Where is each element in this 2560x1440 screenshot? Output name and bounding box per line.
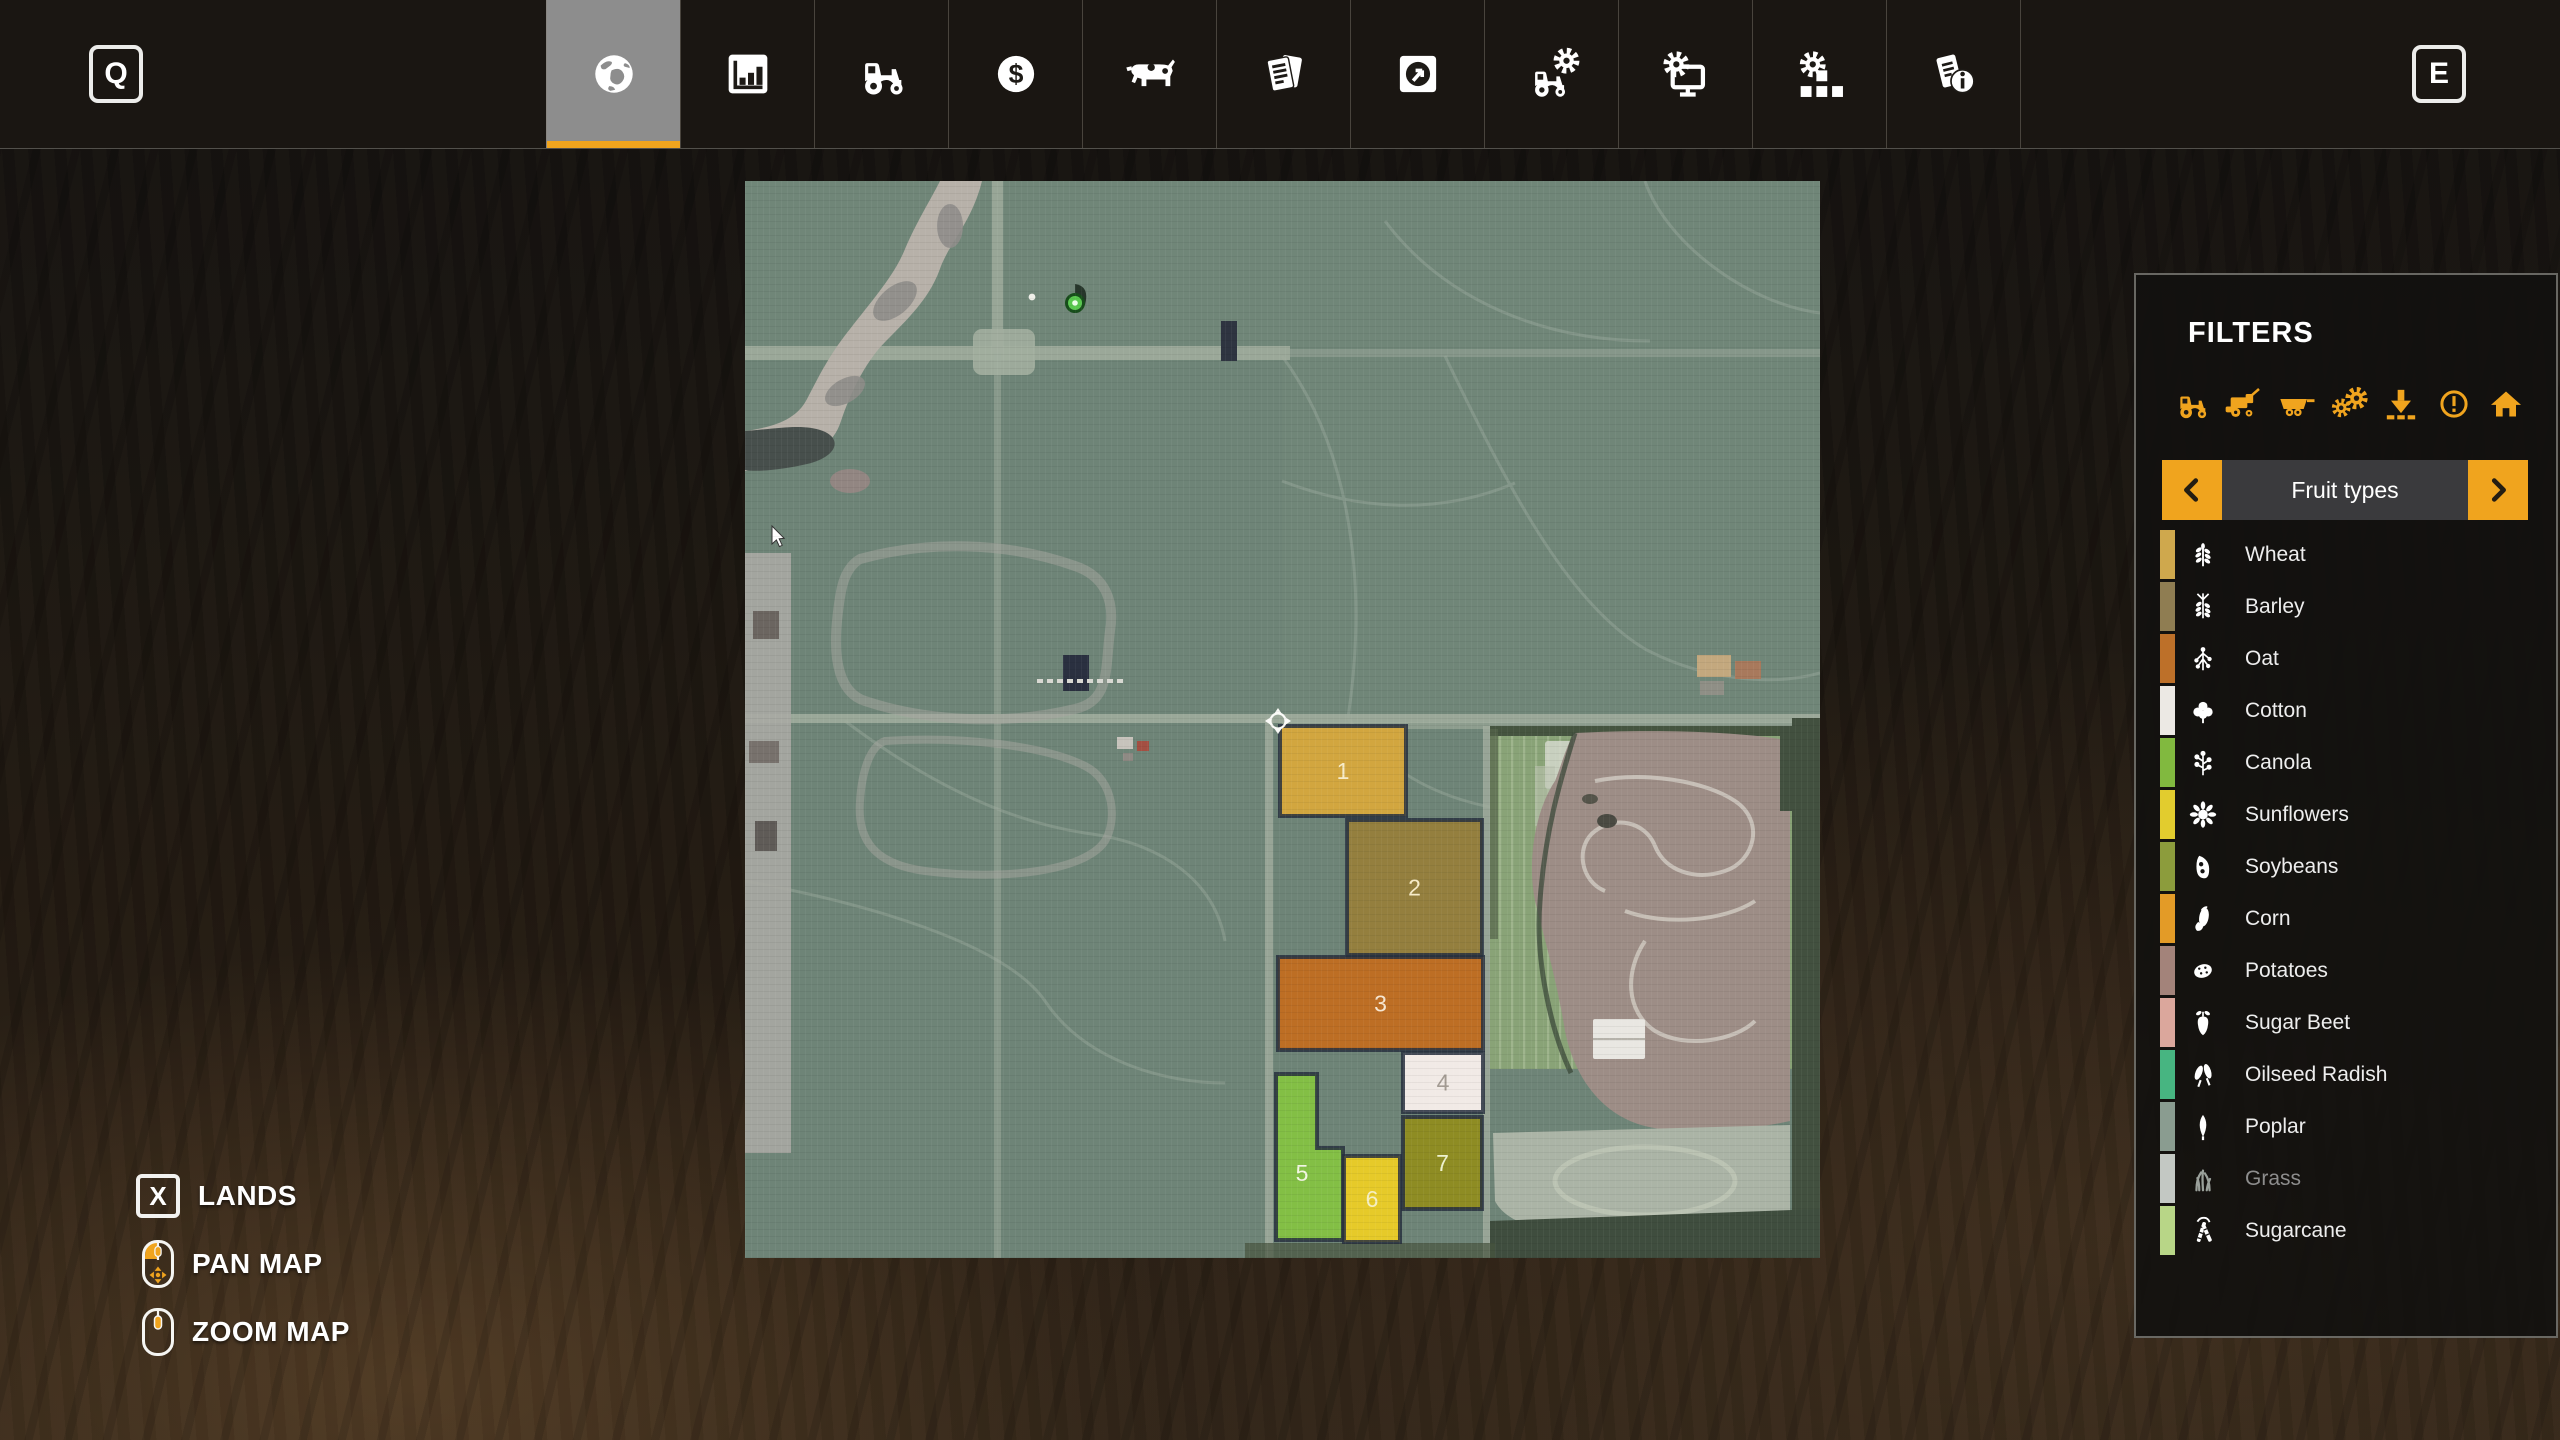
- active-tab-underline: [547, 141, 680, 148]
- crop-color-bar: [2160, 946, 2175, 995]
- lands-hint: X LANDS: [136, 1170, 350, 1222]
- crop-color-bar: [2160, 1102, 2175, 1151]
- zoom-map-label: ZOOM MAP: [192, 1316, 350, 1348]
- map-field-number: 6: [1366, 1186, 1379, 1212]
- canola-icon: [2188, 748, 2218, 778]
- crop-label: Oilseed Radish: [2245, 1063, 2387, 1087]
- crop-label: Canola: [2245, 751, 2312, 775]
- doc-info-icon: [1925, 45, 1983, 103]
- map-terrain: 1234567: [745, 181, 1820, 1258]
- tab-statistics[interactable]: [680, 0, 814, 148]
- sunflower-icon: [2188, 800, 2218, 830]
- toolbar-tabs: [546, 0, 2021, 148]
- tab-contracts[interactable]: [1216, 0, 1350, 148]
- dollar-icon: [987, 45, 1045, 103]
- crop-row-wheat[interactable]: Wheat: [2136, 530, 2556, 579]
- f-gears-icon: [2327, 384, 2371, 424]
- top-toolbar: Q E: [0, 0, 2560, 149]
- tab-game-settings[interactable]: [1618, 0, 1752, 148]
- crop-list: WheatBarleyOatCottonCanolaSunflowersSoyb…: [2136, 530, 2556, 1255]
- crop-row-potatoes[interactable]: Potatoes: [2136, 946, 2556, 995]
- map-field-number: 3: [1374, 991, 1387, 1017]
- crop-label: Barley: [2245, 595, 2305, 619]
- map-view[interactable]: 1234567: [745, 181, 1820, 1258]
- tab-help[interactable]: [1886, 0, 2021, 148]
- crop-label: Corn: [2245, 907, 2291, 931]
- tab-prices[interactable]: [1350, 0, 1484, 148]
- filter-buildings-button[interactable]: [2484, 384, 2528, 424]
- crop-color-bar: [2160, 1206, 2175, 1255]
- map-field-number: 2: [1408, 875, 1421, 901]
- f-unload-icon: [2379, 384, 2423, 424]
- zoom-map-hint: ZOOM MAP: [136, 1306, 350, 1358]
- map-field-number: 5: [1296, 1160, 1309, 1186]
- contracts-icon: [1255, 45, 1313, 103]
- filter-production-button[interactable]: [2327, 384, 2371, 424]
- crop-row-corn[interactable]: Corn: [2136, 894, 2556, 943]
- key-x: X: [136, 1174, 180, 1218]
- crop-color-bar: [2160, 1154, 2175, 1203]
- crop-label: Sunflowers: [2245, 803, 2349, 827]
- crop-row-sugar-beet[interactable]: Sugar Beet: [2136, 998, 2556, 1047]
- crop-row-oilseed-radish[interactable]: Oilseed Radish: [2136, 1050, 2556, 1099]
- crop-label: Grass: [2245, 1167, 2301, 1191]
- crop-row-canola[interactable]: Canola: [2136, 738, 2556, 787]
- filter-tractors-button[interactable]: [2170, 384, 2214, 424]
- fruit-types-next-button[interactable]: [2468, 460, 2528, 520]
- chevron-right-icon: [2483, 474, 2513, 506]
- barley-icon: [2188, 592, 2218, 622]
- lands-label: LANDS: [198, 1180, 297, 1212]
- crop-label: Sugar Beet: [2245, 1011, 2350, 1035]
- crop-row-cotton[interactable]: Cotton: [2136, 686, 2556, 735]
- filter-icon-row: [2170, 384, 2528, 424]
- filter-trailers-button[interactable]: [2275, 384, 2319, 424]
- crop-color-bar: [2160, 894, 2175, 943]
- crop-row-soybeans[interactable]: Soybeans: [2136, 842, 2556, 891]
- crop-color-bar: [2160, 530, 2175, 579]
- fruit-types-label: Fruit types: [2222, 460, 2468, 520]
- wheat-icon: [2188, 540, 2218, 570]
- map-help-overlay: X LANDS PAN MAP ZOOM MAP: [136, 1170, 350, 1374]
- f-harvester-icon: [2222, 384, 2266, 424]
- crop-label: Poplar: [2245, 1115, 2306, 1139]
- crop-row-grass[interactable]: Grass: [2136, 1154, 2556, 1203]
- fruit-types-prev-button[interactable]: [2162, 460, 2222, 520]
- poplar-icon: [2188, 1112, 2218, 1142]
- crop-label: Oat: [2245, 647, 2279, 671]
- chevron-left-icon: [2177, 474, 2207, 506]
- pan-map-hint: PAN MAP: [136, 1238, 350, 1290]
- filter-unloading-button[interactable]: [2379, 384, 2423, 424]
- crop-label: Soybeans: [2245, 855, 2338, 879]
- crop-color-bar: [2160, 790, 2175, 839]
- oat-icon: [2188, 644, 2218, 674]
- map-field-number: 7: [1436, 1150, 1449, 1176]
- tab-production[interactable]: [1752, 0, 1886, 148]
- crop-color-bar: [2160, 634, 2175, 683]
- filters-panel: FILTERS Fruit types WheatBarleyOatCotton…: [2134, 273, 2558, 1338]
- f-trailer-icon: [2275, 384, 2319, 424]
- crop-row-barley[interactable]: Barley: [2136, 582, 2556, 631]
- crop-row-oat[interactable]: Oat: [2136, 634, 2556, 683]
- monitor-gear-icon: [1657, 45, 1715, 103]
- crop-color-bar: [2160, 686, 2175, 735]
- pan-map-label: PAN MAP: [192, 1248, 323, 1280]
- fruit-types-selector: Fruit types: [2162, 460, 2528, 520]
- prices-icon: [1389, 45, 1447, 103]
- cow-icon: [1121, 45, 1179, 103]
- tractor-icon: [853, 45, 911, 103]
- potato-icon: [2188, 956, 2218, 986]
- filter-harvesters-button[interactable]: [2222, 384, 2266, 424]
- filter-alerts-button[interactable]: [2432, 384, 2476, 424]
- f-home-icon: [2484, 384, 2528, 424]
- tab-animals[interactable]: [1082, 0, 1216, 148]
- crop-color-bar: [2160, 842, 2175, 891]
- crop-row-poplar[interactable]: Poplar: [2136, 1102, 2556, 1151]
- crop-row-sugarcane[interactable]: Sugarcane: [2136, 1206, 2556, 1255]
- mouse-zoom-icon: [140, 1306, 176, 1358]
- soybean-icon: [2188, 852, 2218, 882]
- cotton-icon: [2188, 696, 2218, 726]
- map-field-number: 1: [1337, 758, 1350, 784]
- f-tractor-icon: [2170, 384, 2214, 424]
- tab-vehicles[interactable]: [814, 0, 948, 148]
- tractor-gear-icon: [1523, 45, 1581, 103]
- sugarcane-icon: [2188, 1216, 2218, 1246]
- crop-row-sunflowers[interactable]: Sunflowers: [2136, 790, 2556, 839]
- tab-maintenance[interactable]: [1484, 0, 1618, 148]
- crop-color-bar: [2160, 582, 2175, 631]
- crop-color-bar: [2160, 738, 2175, 787]
- tab-map[interactable]: [546, 0, 680, 148]
- corn-icon: [2188, 904, 2218, 934]
- crop-color-bar: [2160, 1050, 2175, 1099]
- map-field-number: 4: [1437, 1070, 1450, 1096]
- globe-icon: [585, 45, 643, 103]
- grass-icon: [2188, 1164, 2218, 1194]
- tab-finances[interactable]: [948, 0, 1082, 148]
- crop-label: Potatoes: [2245, 959, 2328, 983]
- radish-icon: [2188, 1060, 2218, 1090]
- blocks-gear-icon: [1791, 45, 1849, 103]
- crop-label: Sugarcane: [2245, 1219, 2347, 1243]
- key-hint-e: E: [2412, 45, 2466, 103]
- f-alert-icon: [2432, 384, 2476, 424]
- filters-title: FILTERS: [2188, 317, 2556, 350]
- key-hint-q: Q: [89, 45, 143, 103]
- crop-label: Cotton: [2245, 699, 2307, 723]
- crop-color-bar: [2160, 998, 2175, 1047]
- sugarbeet-icon: [2188, 1008, 2218, 1038]
- crop-label: Wheat: [2245, 543, 2306, 567]
- poi-dot: [1029, 294, 1036, 301]
- mouse-pan-icon: [140, 1238, 176, 1290]
- chart-icon: [719, 45, 777, 103]
